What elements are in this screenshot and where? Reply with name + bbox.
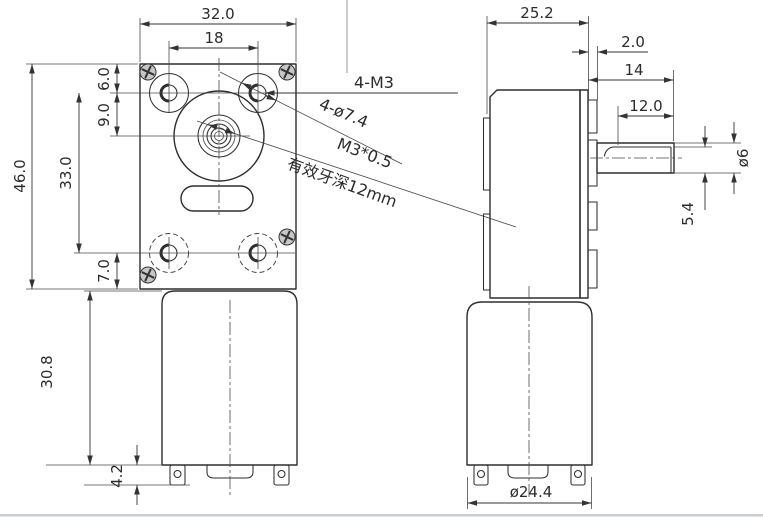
front-dimensions: 32.0 18 46.0 6.0 9.0 33.0 7.0 30.8 4.2 (11, 5, 296, 505)
dim-edge-to-hole: 6.0 (95, 67, 113, 91)
dim-hole-to-bottom: 7.0 (95, 259, 113, 283)
label-mounting-holes: 4-ø7.4 (316, 94, 371, 131)
dim-front-width: 32.0 (201, 5, 234, 23)
corner-screw (276, 226, 297, 247)
dim-shaft-dia: ø6 (734, 149, 752, 168)
dim-motor-length: 30.8 (38, 355, 56, 388)
front-view: 32.0 18 46.0 6.0 9.0 33.0 7.0 30.8 4.2 (11, 5, 516, 505)
page-bottom-rule (0, 514, 763, 517)
side-dimensions: 25.2 2.0 14 12.0 ø6 5.4 ø24.4 (468, 4, 753, 509)
dim-front-height: 46.0 (11, 159, 29, 192)
motor-terminals-side (474, 465, 585, 485)
motor-side-outline (467, 302, 592, 465)
cover-plate (580, 90, 588, 298)
label-corner-screws: 4-M3 (354, 73, 394, 92)
motor-front-outline (162, 291, 297, 465)
motor-terminals-front (170, 465, 289, 485)
output-shaft-side (590, 143, 682, 173)
cover-plate-bosses (588, 100, 597, 288)
gearbox-side-outline (490, 90, 580, 298)
dim-boss-offset: 2.0 (621, 33, 645, 51)
gear-motor-technical-drawing: 32.0 18 46.0 6.0 9.0 33.0 7.0 30.8 4.2 (0, 0, 763, 525)
dim-flat-length: 12.0 (629, 97, 662, 115)
front-annotations: 4-M3 4-ø7.4 M3*0.5 有效牙深12mm (197, 72, 516, 227)
dim-hole-span-v: 33.0 (57, 156, 75, 189)
dim-depth: 25.2 (520, 4, 553, 22)
dim-hole-span: 18 (204, 29, 223, 47)
side-view: 25.2 2.0 14 12.0 ø6 5.4 ø24.4 (467, 4, 752, 509)
oval-slot (181, 186, 253, 211)
dim-hole-to-shaft: 9.0 (95, 103, 113, 127)
dim-flat-height: 5.4 (679, 202, 697, 226)
label-shaft-thread: M3*0.5 (335, 134, 395, 172)
dim-shaft-length: 14 (624, 61, 643, 79)
dim-motor-dia: ø24.4 (510, 483, 553, 501)
rear-edge-strip (484, 118, 491, 190)
drawing-page: 32.0 18 46.0 6.0 9.0 33.0 7.0 30.8 4.2 (0, 0, 763, 525)
dim-terminal-depth: 4.2 (108, 464, 126, 488)
rear-edge-strip (484, 214, 491, 290)
